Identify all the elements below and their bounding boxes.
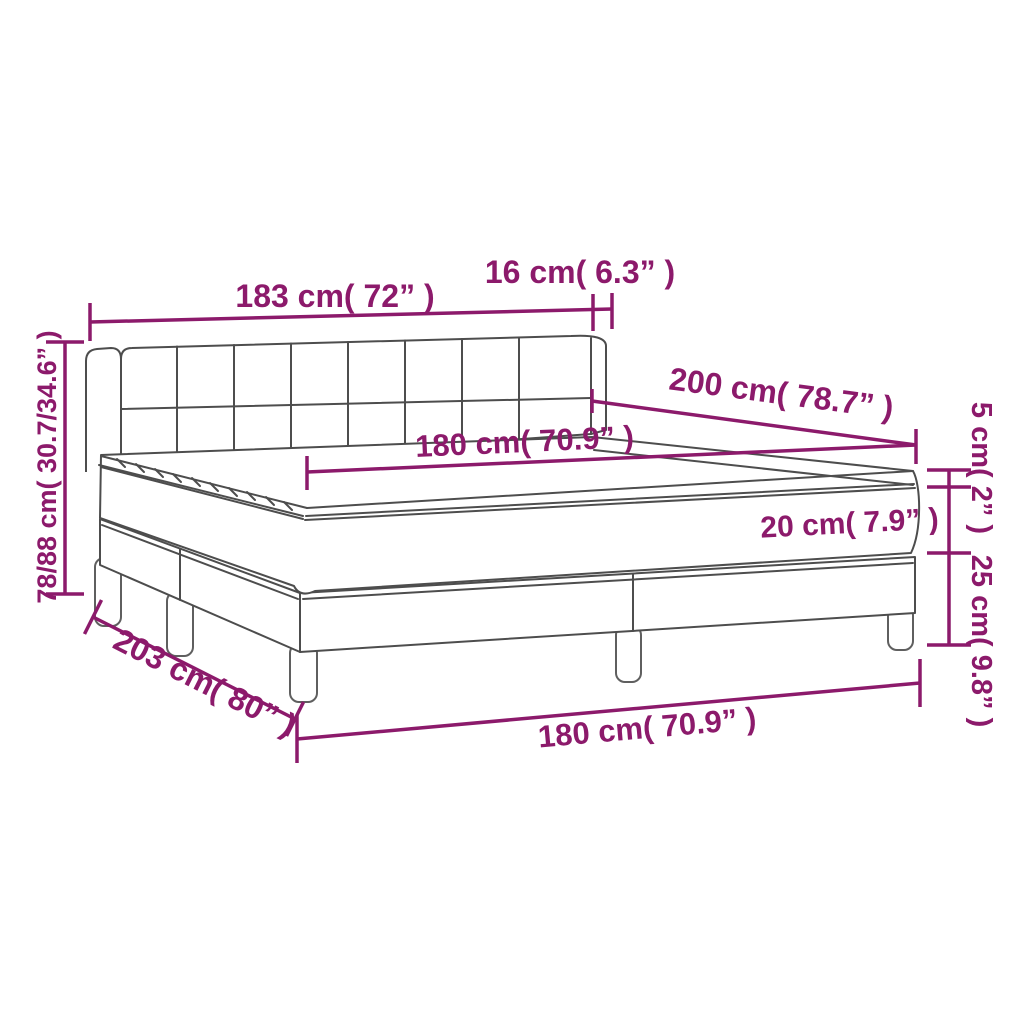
dim-base-height-label: 25 cm( 9.8” ): [965, 555, 997, 727]
dim-length: 200 cm( 78.7” ): [592, 361, 916, 445]
dim-topper-thickness-label: 5 cm( 2” ): [965, 402, 997, 534]
leg-front-middle: [616, 626, 641, 682]
diagram-svg: 183 cm( 72” ) 16 cm( 6.3” ) 78/88 cm( 30…: [0, 0, 1024, 1024]
dim-side-offset-label: 16 cm( 6.3” ): [485, 254, 675, 290]
dim-headboard-width-label: 183 cm( 72” ): [235, 278, 434, 314]
dim-total-height: 78/88 cm( 30.7/34.6” ): [32, 330, 84, 603]
dim-base-width: 180 cm( 70.9” ): [297, 659, 920, 763]
dim-headboard-width: 183 cm( 72” ) 16 cm( 6.3” ): [90, 254, 675, 341]
dim-total-height-label: 78/88 cm( 30.7/34.6” ): [32, 330, 62, 603]
bed-dimension-diagram: 183 cm( 72” ) 16 cm( 6.3” ) 78/88 cm( 30…: [0, 0, 1024, 1024]
headboard-left-post: [86, 348, 121, 472]
